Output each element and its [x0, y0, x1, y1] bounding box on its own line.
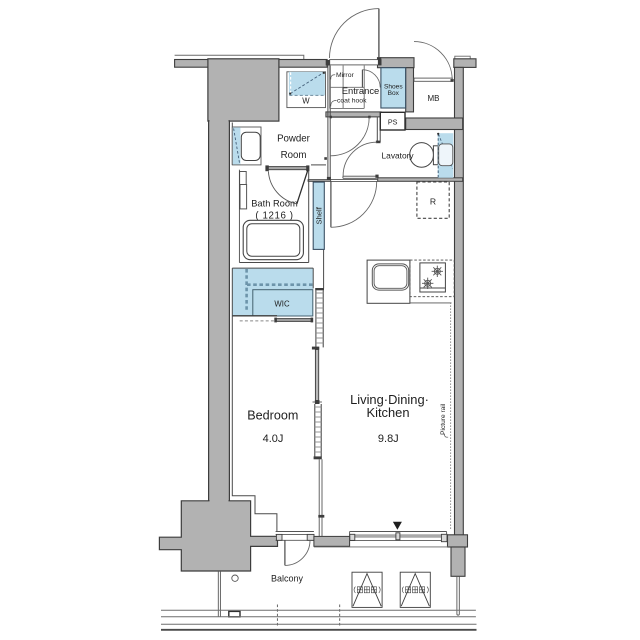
- svg-text:R: R: [430, 197, 436, 207]
- svg-text:Room: Room: [281, 150, 307, 161]
- svg-text:4.0J: 4.0J: [263, 433, 284, 445]
- svg-text:Entrance: Entrance: [342, 85, 380, 96]
- svg-text:Powder: Powder: [277, 133, 311, 144]
- svg-text:W: W: [302, 96, 310, 105]
- svg-text:Picture rail: Picture rail: [440, 403, 447, 435]
- svg-text:Kitchen: Kitchen: [367, 405, 410, 420]
- svg-text:9.8J: 9.8J: [378, 433, 399, 445]
- svg-text:PS: PS: [388, 117, 398, 126]
- svg-text:Box: Box: [388, 90, 400, 97]
- svg-text:Balcony: Balcony: [271, 574, 304, 584]
- svg-text:WIC: WIC: [274, 300, 290, 309]
- svg-text:MB: MB: [428, 94, 440, 103]
- svg-text:Mirror: Mirror: [336, 72, 354, 79]
- svg-text:Bath Room: Bath Room: [251, 198, 298, 208]
- svg-text:coat hook: coat hook: [337, 98, 367, 105]
- svg-text:Shelf: Shelf: [314, 206, 323, 224]
- svg-text:Bedroom: Bedroom: [247, 409, 298, 423]
- svg-text:Lavatory: Lavatory: [382, 150, 415, 160]
